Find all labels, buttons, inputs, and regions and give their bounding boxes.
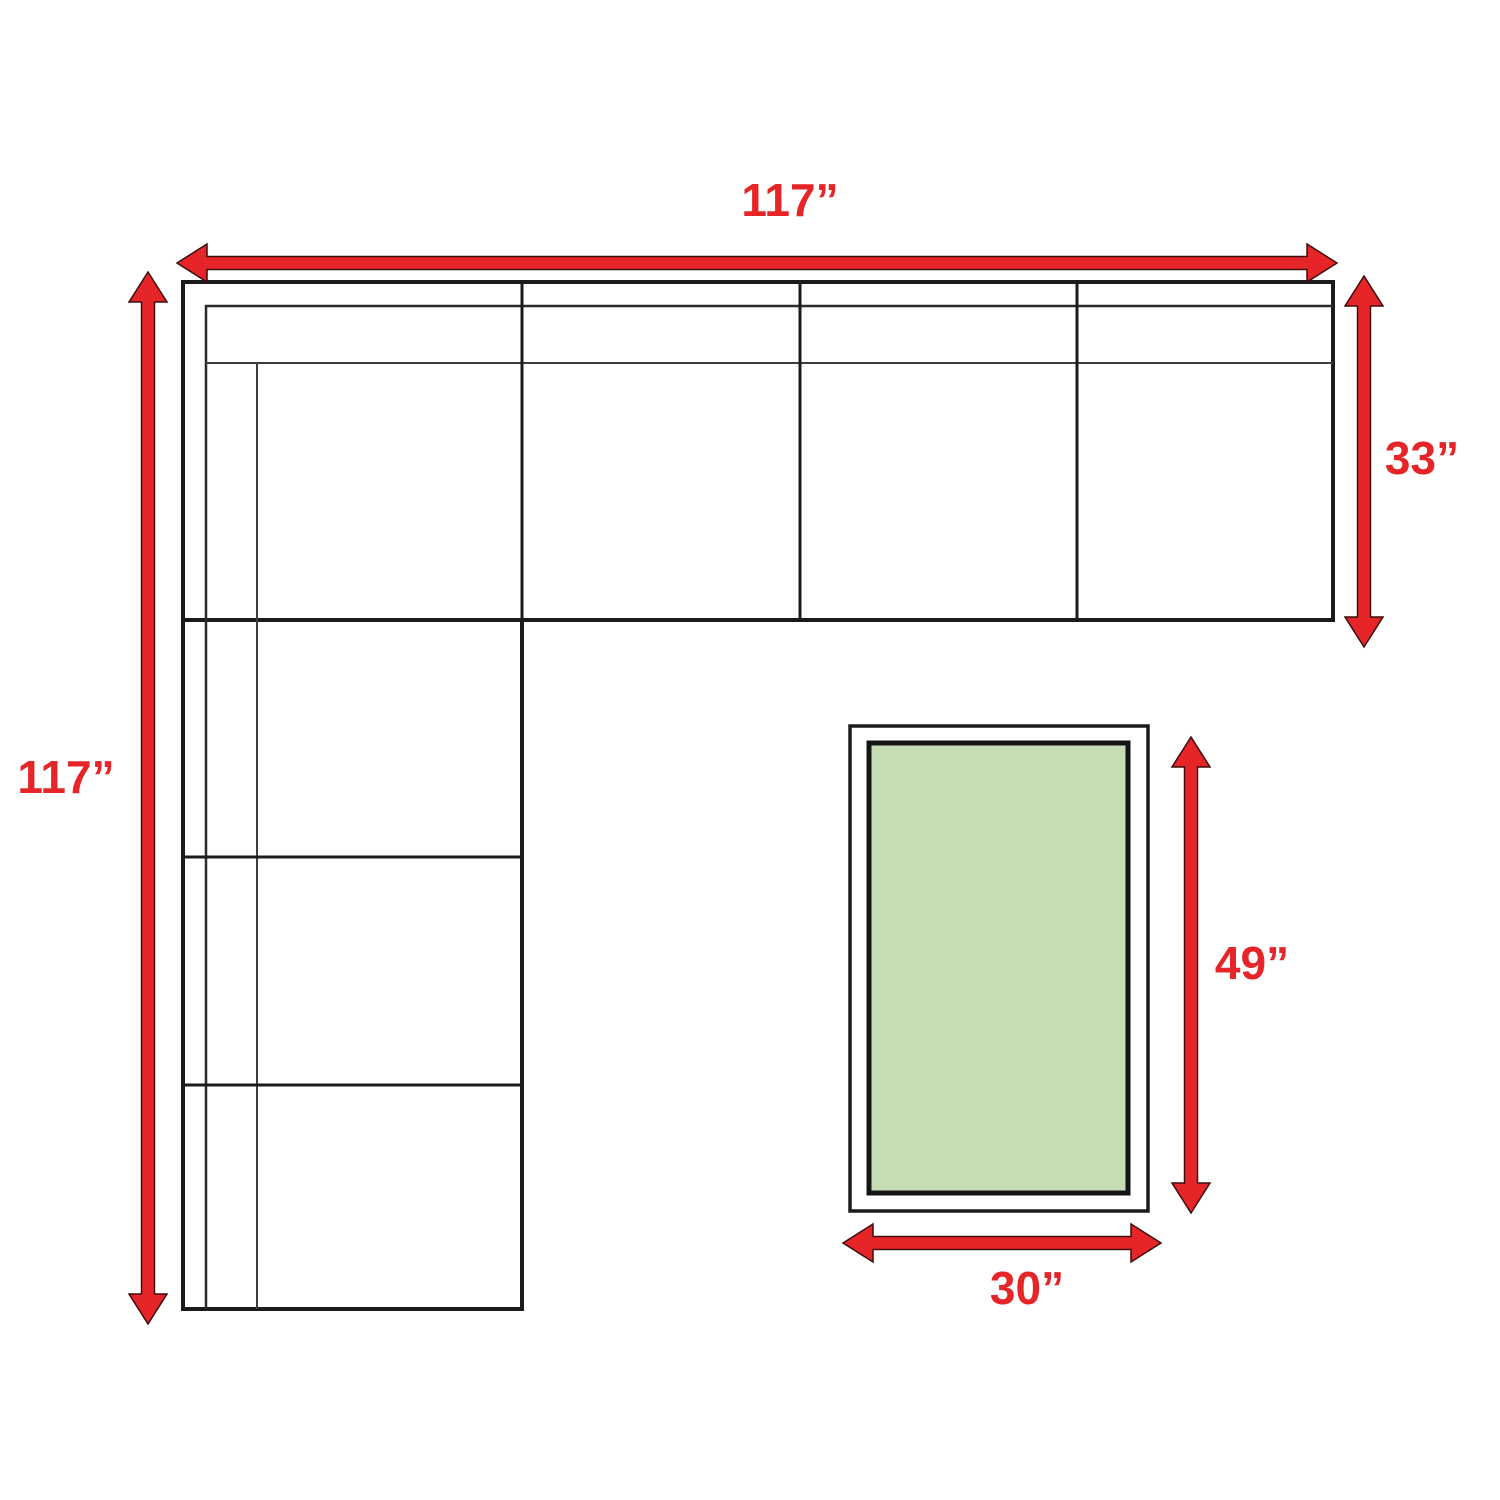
table-width-label: 30” [990,1262,1064,1314]
table-length-label: 49” [1215,937,1289,989]
coffee-table-top-surface [869,743,1128,1193]
table-length-arrow [1172,737,1210,1213]
sectional-sofa-plan [183,282,1333,1309]
furniture-dimension-diagram: 117” 117” 33” 49” 30” [0,0,1500,1500]
sofa-width-arrow [177,244,1337,282]
table-width-arrow [843,1224,1161,1262]
coffee-table-plan [850,726,1148,1211]
sofa-outer-border [183,282,1333,1309]
sofa-width-label: 117” [741,174,838,226]
sofa-depth-arrow [129,272,167,1324]
section-depth-arrow [1345,276,1383,647]
diagram-svg: 117” 117” 33” 49” 30” [0,0,1500,1500]
sofa-depth-label: 117” [17,751,114,803]
section-depth-label: 33” [1385,432,1459,484]
